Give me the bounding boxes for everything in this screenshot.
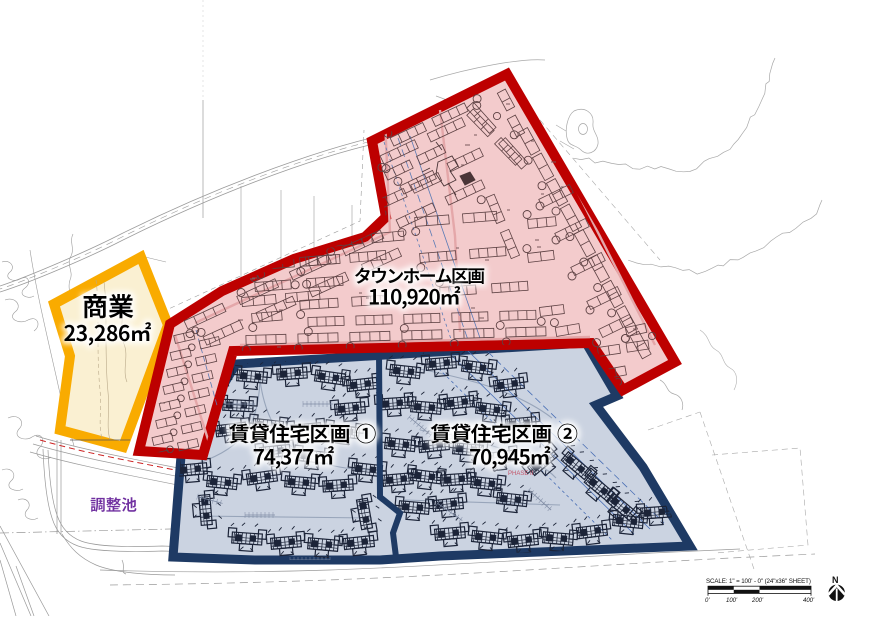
svg-text:100': 100' <box>726 598 738 604</box>
svg-text:SCALE: 1" = 100' - 0" (24"x36: SCALE: 1" = 100' - 0" (24"x36" SHEET) <box>706 578 811 585</box>
svg-text:400': 400' <box>803 598 815 604</box>
svg-text:200': 200' <box>751 598 764 604</box>
svg-text:N: N <box>832 575 839 585</box>
svg-text:PHASE II: PHASE II <box>508 471 534 477</box>
